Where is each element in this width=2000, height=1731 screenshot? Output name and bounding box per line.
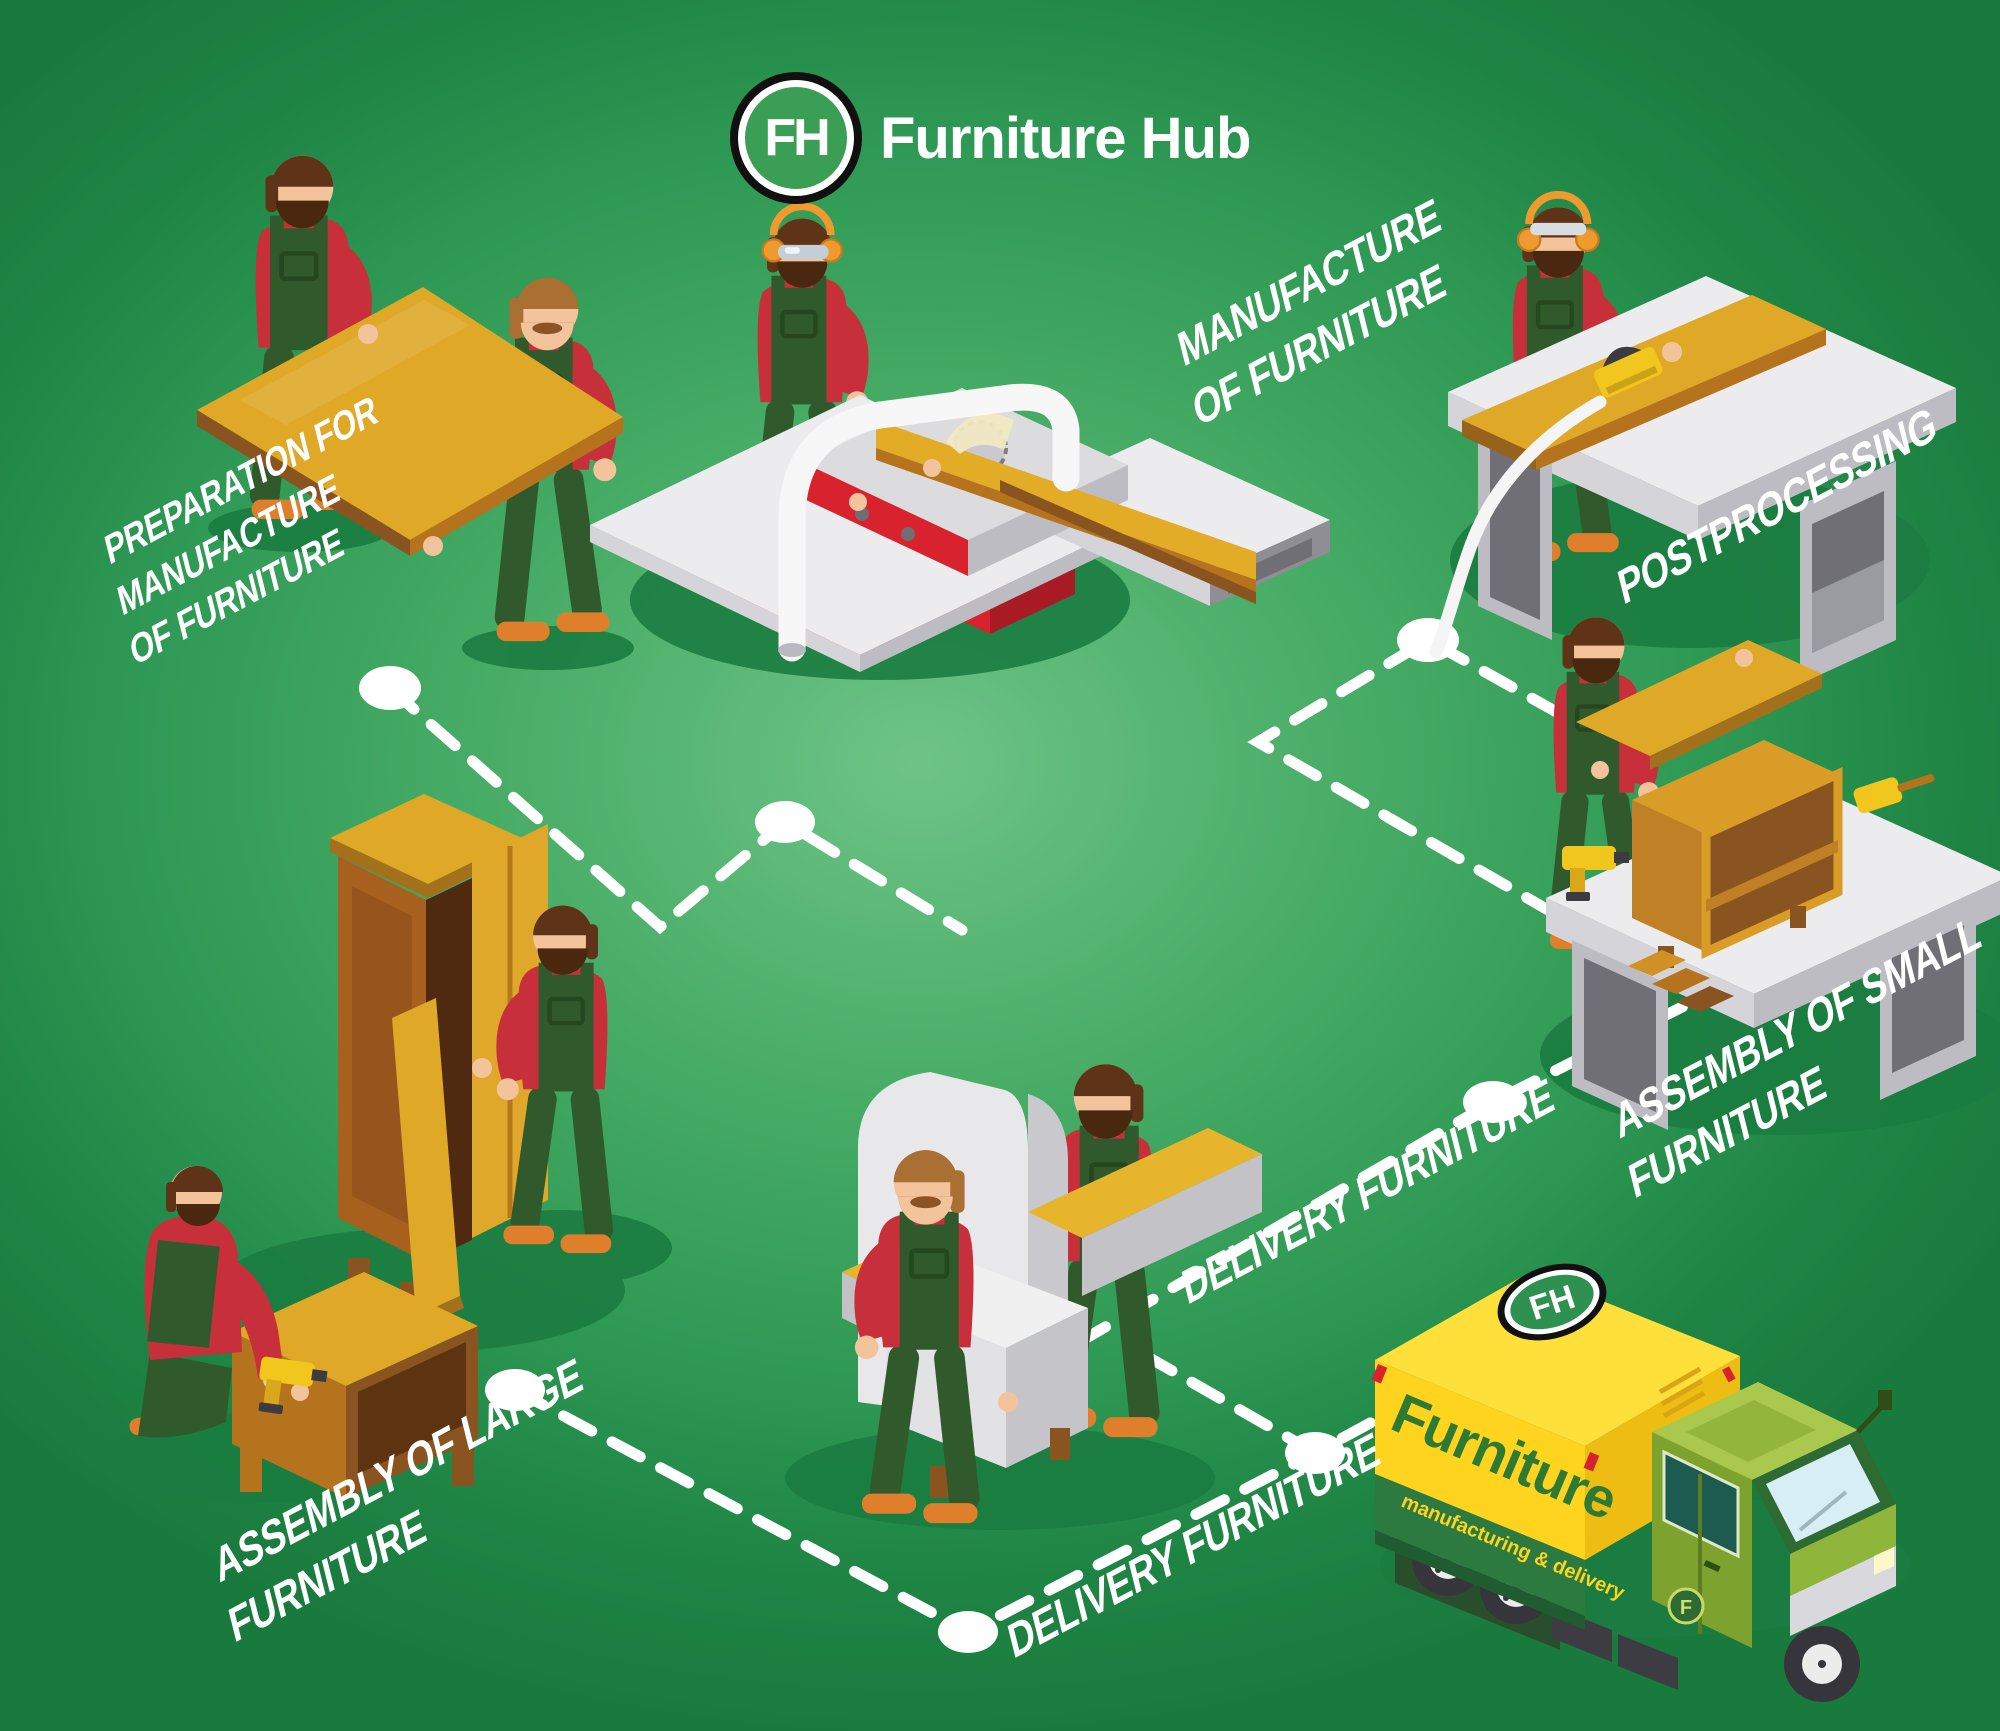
brand-logo-icon: FH (738, 80, 854, 196)
flow-node (755, 801, 815, 843)
truck-door-badge: F (1669, 1589, 1703, 1623)
flow-node (938, 1611, 998, 1653)
scene-art: FH Furniture manufacturing & delivery F (0, 0, 2000, 1731)
flow-node (359, 666, 421, 710)
brand-name: Furniture Hub (880, 105, 1250, 172)
infographic-canvas: FH Furniture manufacturing & delivery F … (0, 0, 2000, 1731)
flow-path-branch (1148, 1357, 1315, 1453)
brand-initials: FH (764, 108, 827, 168)
svg-text:F: F (1680, 1597, 1692, 1619)
brand-logo: FH Furniture Hub (738, 80, 1250, 196)
